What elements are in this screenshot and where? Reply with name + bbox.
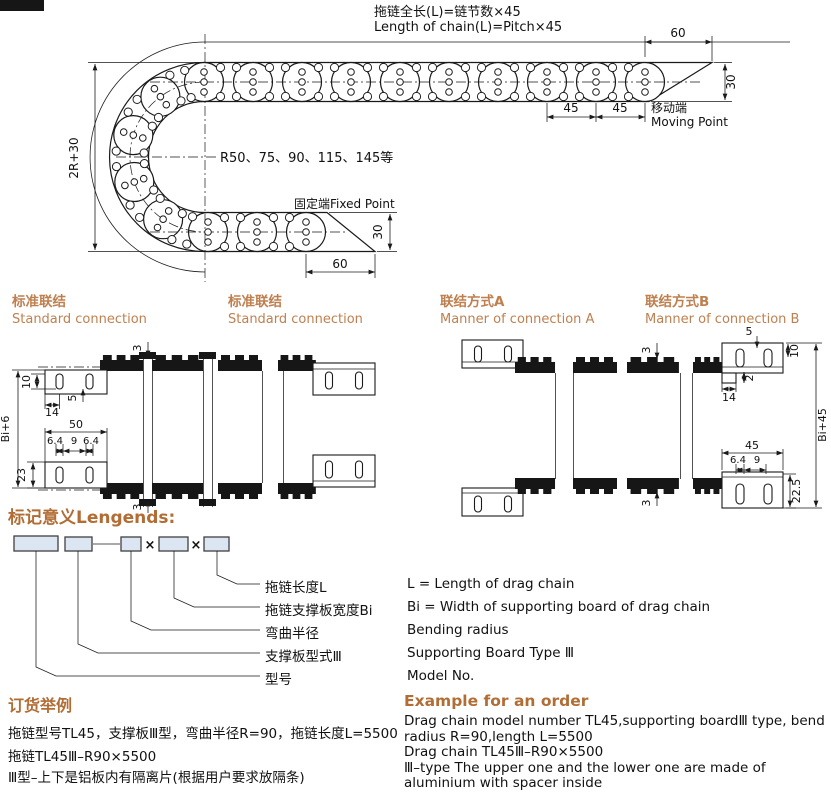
chain-side-view: 拖链全长(L)=链节数×45 Length of chain(L)=Pitch×… (67, 4, 790, 282)
section-heading-en: Standard connection (12, 312, 147, 327)
dim-225: 22.5 (790, 479, 803, 504)
section-heading-standard-1: 标准联结 Standard connection (12, 294, 147, 328)
section-heading-cn: 联结方式B (645, 294, 799, 311)
dim-5: 5 (66, 395, 79, 402)
order-example-line-1-en: Drag chain model number TL45,supporting … (404, 714, 828, 745)
dim-10: 10 (20, 375, 33, 389)
legend-item-length-en: L = Length of drag chain (407, 576, 574, 592)
dim-64: 6.4 (730, 455, 746, 466)
section-heading-en: Manner of connection B (645, 312, 799, 327)
dim-2: 2 (743, 375, 756, 382)
legend-item-model-cn: 型号 (265, 668, 292, 688)
legend-diagram: × × (14, 536, 260, 676)
section-heading-standard-2: 标准联结 Standard connection (228, 294, 363, 328)
legend-item-width-cn: 拖链支撑板宽度Bi (265, 599, 373, 619)
fixed-point-label: 固定端Fixed Point (294, 196, 395, 211)
order-example-line-3-en: Ⅲ–type The upper one and the lower one a… (404, 761, 828, 792)
dim-bi6: Bi+6 (0, 416, 12, 443)
dim-bottom-30: 30 (371, 224, 385, 239)
moving-point-label-cn: 移动端 (651, 101, 687, 115)
legend-item-length-cn: 拖链长度L (265, 576, 327, 596)
dim-9: 9 (71, 436, 77, 447)
dim-50: 50 (69, 418, 83, 431)
dim-3-bottom: 3 (640, 500, 653, 507)
order-example-line-2-en: Drag chain TL45Ⅲ–R90×5500 (404, 745, 828, 761)
dim-2r30: 2R+30 (67, 137, 81, 178)
dim-9: 9 (754, 455, 760, 466)
catalog-page: 拖链全长(L)=链节数×45 Length of chain(L)=Pitch×… (0, 0, 831, 792)
legend-item-radius-cn: 弯曲半径 (265, 622, 319, 642)
times-symbol-1: × (145, 538, 156, 553)
order-example-line-2-cn: 拖链TL45Ⅲ–R90×5500 (8, 745, 156, 765)
legend-item-board-type-cn: 支撑板型式Ⅲ (265, 645, 342, 665)
bend-radius-note: R50、75、90、115、145等 (220, 150, 393, 166)
order-example-heading-en: Example for an order (404, 692, 588, 710)
order-example-line-1-cn: 拖链型号TL45，支撑板Ⅲ型，弯曲半径R=90，拖链长度L=5500 (8, 722, 398, 742)
section-heading-connection-a: 联结方式A Manner of connection A (440, 294, 594, 328)
dim-14: 14 (722, 391, 736, 404)
dim-pitch-45-b: 45 (612, 101, 627, 115)
times-symbol-2: × (191, 538, 202, 553)
legend-callout-lines (36, 551, 260, 676)
dim-10: 10 (788, 344, 801, 358)
dim-3-top: 3 (131, 345, 144, 352)
dim-bi45: Bi+45 (816, 408, 829, 442)
order-example-body-en: Drag chain model number TL45,supporting … (404, 714, 828, 792)
legend-item-board-type-en: Supporting Board Type Ⅲ (407, 645, 574, 661)
cross-section-1: 3 10 14 5 Bi+6 50 6.4 9 6.4 23 3 (0, 342, 216, 513)
dim-pitch-45-a: 45 (563, 101, 578, 115)
cross-section-2 (218, 355, 375, 499)
dim-64-left: 6.4 (47, 436, 63, 447)
cross-section-4: 3 5 10 2 14 Bi+45 45 6.4 9 22.5 3 (627, 325, 829, 508)
dim-64-right: 6.4 (83, 436, 99, 447)
section-heading-en: Manner of connection A (440, 312, 594, 327)
dim-45: 45 (745, 439, 759, 452)
chain-length-formula-cn: 拖链全长(L)=链节数×45 (374, 4, 521, 20)
moving-point-label-en: Moving Point (651, 115, 728, 129)
dim-14: 14 (45, 406, 59, 419)
legend-item-model-en: Model No. (407, 668, 474, 684)
order-example-heading-cn: 订货举例 (8, 692, 72, 716)
dim-top-60: 60 (670, 26, 685, 40)
dim-right-30: 30 (724, 74, 738, 89)
cross-section-3 (462, 340, 617, 516)
section-heading-connection-b: 联结方式B Manner of connection B (645, 294, 799, 328)
dim-3-top: 3 (640, 347, 653, 354)
section-heading-cn: 标准联结 (12, 294, 147, 311)
legend-item-radius-en: Bending radius (407, 622, 509, 638)
dim-23: 23 (15, 468, 28, 482)
dim-bottom-60: 60 (332, 257, 347, 271)
order-example-line-3-cn: Ⅲ型–上下是铝板内有隔离片(根据用户要求放隔条) (8, 766, 305, 786)
section-heading-cn: 标准联结 (228, 294, 363, 311)
section-heading-cn: 联结方式A (440, 294, 594, 311)
legend-heading: 标记意义Lengends: (8, 503, 175, 528)
chain-length-formula-en: Length of chain(L)=Pitch×45 (374, 20, 562, 35)
section-heading-en: Standard connection (228, 312, 363, 327)
legend-item-width-en: Bi = Width of supporting board of drag c… (407, 599, 710, 615)
